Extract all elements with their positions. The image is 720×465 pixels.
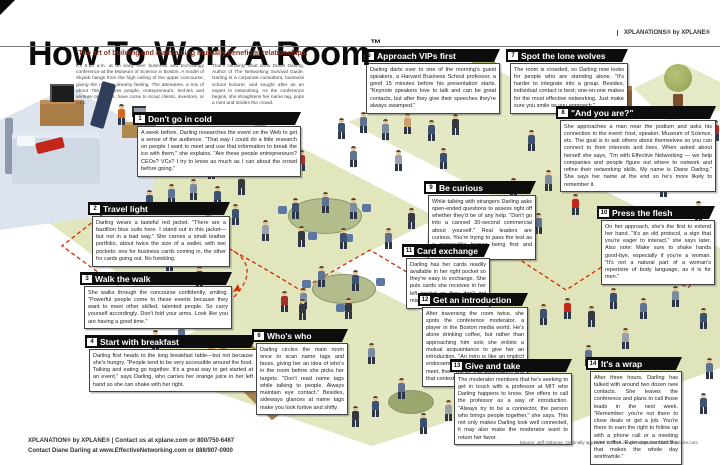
person-figure <box>322 192 329 213</box>
person-figure <box>338 118 345 139</box>
callout-title: "And you are?" <box>571 108 633 118</box>
person-figure <box>281 291 288 312</box>
person-figure <box>610 288 617 309</box>
corner-triangle-mark <box>0 0 15 15</box>
callout-dont-go-in-cold: 1Don't go in cold A week before, Darling… <box>133 112 301 177</box>
intro-paragraph-1: It's 6:50 a.m. at an early riser busines… <box>76 64 204 108</box>
callout-header: 6Who's who <box>252 329 348 342</box>
callout-title: Be curious <box>439 183 483 193</box>
person-figure <box>238 174 245 195</box>
person-figure <box>292 198 299 219</box>
poster-subtitle: The art of building and maintaining mutu… <box>68 50 318 57</box>
callout-body: After three hours, Darling has talked wi… <box>590 371 682 465</box>
intro-paragraph-2: That's certainly what drew Diane Darling… <box>212 64 304 108</box>
person-figure <box>700 308 707 329</box>
person-figure <box>352 406 359 427</box>
person-figure <box>588 306 595 327</box>
callout-approach-vips-first: 5Approach VIPs first Darling darts over … <box>362 49 500 114</box>
step-number: 13 <box>452 362 462 370</box>
callout-press-the-flesh: 10Press the flesh On her approach, she's… <box>597 206 715 285</box>
step-number: 14 <box>588 360 598 368</box>
callout-give-and-take: 13Give and take The moderator mentions t… <box>450 359 572 445</box>
person-figure <box>372 396 379 417</box>
callout-body: Darling first heads to the long breakfas… <box>89 349 257 392</box>
callout-body: Darling darts over to one of the morning… <box>366 63 500 114</box>
footer-contact-info: XPLANATION® by XPLANE® | Contact us at x… <box>28 436 234 456</box>
person-figure <box>345 298 352 319</box>
callout-spot-the-lone-wolves: 7Spot the lone wolves The room is crowde… <box>506 49 628 114</box>
person-figure <box>706 358 713 379</box>
callout-header: 4Start with breakfast <box>85 335 257 348</box>
callout-whos-who: 6Who's who Darling circles the main room… <box>252 329 348 415</box>
person-figure <box>368 343 375 364</box>
footer-source-credit: Source: Jeff Osborne. Originally appeare… <box>520 440 698 445</box>
callout-header: 10Press the flesh <box>597 206 715 219</box>
person-figure <box>299 299 306 320</box>
callout-body: Darling circles the main room once to sc… <box>256 343 348 415</box>
callout-header: 13Give and take <box>450 359 572 372</box>
callout-travel-light: 2Travel light Darling wears a tasteful r… <box>88 202 230 267</box>
footer-line-2: Contact Diane Darling at www.EffectiveNe… <box>28 446 234 456</box>
callout-title: Spot the lone wolves <box>521 51 606 61</box>
step-number: 7 <box>508 52 518 60</box>
person-figure <box>540 304 547 325</box>
person-figure <box>452 114 459 135</box>
person-figure <box>404 113 411 134</box>
callout-title: Give and take <box>465 361 520 371</box>
callout-title: Don't go in cold <box>148 114 212 124</box>
callout-header: 2Travel light <box>88 202 230 215</box>
darling-figure <box>564 298 571 319</box>
callout-body: She walks through the concourse confiden… <box>84 286 232 329</box>
callout-header: 1Don't go in cold <box>133 112 301 125</box>
callout-title: It's a wrap <box>601 359 642 369</box>
callout-header: 8"And you are?" <box>556 106 716 119</box>
header-rule <box>0 46 720 47</box>
callout-header: 14It's a wrap <box>586 357 682 370</box>
callout-title: Approach VIPs first <box>377 51 456 61</box>
callout-title: Start with breakfast <box>100 337 179 347</box>
person-figure <box>395 150 402 171</box>
person-figure <box>428 120 435 141</box>
person-figure <box>640 298 647 319</box>
person-figure <box>350 146 357 167</box>
person-figure <box>398 378 405 399</box>
person-figure <box>535 213 542 234</box>
step-number: 6 <box>254 332 264 340</box>
callout-title: Press the flesh <box>612 208 672 218</box>
callout-body: A week before, Darling researches the ev… <box>137 126 301 177</box>
callout-header: 3Walk the walk <box>80 272 232 285</box>
callout-header: 7Spot the lone wolves <box>506 49 628 62</box>
person-figure <box>350 198 357 219</box>
person-figure <box>528 130 535 151</box>
step-number: 1 <box>135 115 145 123</box>
person-figure <box>622 328 629 349</box>
darling-figure <box>572 194 579 215</box>
step-number: 8 <box>558 109 568 117</box>
person-figure <box>190 179 197 200</box>
poster-how-to-work-a-room: How To Work A Room™ XPLANATiONS® by XPLA… <box>0 0 720 465</box>
callout-header: 9Be curious <box>424 181 536 194</box>
callout-title: Who's who <box>267 331 312 341</box>
person-figure <box>318 266 325 287</box>
person-figure <box>298 226 305 247</box>
callout-and-you-are: 8"And you are?" She approaches a man nea… <box>556 106 716 192</box>
step-number: 2 <box>90 205 100 213</box>
callout-title: Walk the walk <box>95 274 150 284</box>
person-figure <box>232 204 239 225</box>
person-figure <box>420 413 427 434</box>
person-figure <box>360 112 367 133</box>
callout-header: 5Approach VIPs first <box>362 49 500 62</box>
callout-header: 11Card exchange <box>402 244 490 257</box>
person-figure <box>352 270 359 291</box>
person-figure <box>440 148 447 169</box>
step-number: 9 <box>426 184 436 192</box>
step-number: 10 <box>599 209 609 217</box>
callout-header: 12Get an introduction <box>418 293 528 306</box>
person-figure <box>545 170 552 191</box>
person-figure <box>672 286 679 307</box>
xplane-brand-logo: XPLANATiONS® by XPLANE® <box>617 30 710 36</box>
callout-title: Card exchange <box>417 246 478 256</box>
step-number: 4 <box>87 338 97 346</box>
person-figure <box>385 228 392 249</box>
person-figure <box>262 220 269 241</box>
footer-line-1: XPLANATION® by XPLANE® | Contact us at x… <box>28 436 234 446</box>
step-number: 12 <box>420 296 430 304</box>
callout-body: On her approach, she's the first to exte… <box>601 220 715 285</box>
callout-body: The moderator mentions that he's seeking… <box>454 373 572 445</box>
callout-its-a-wrap: 14It's a wrap After three hours, Darling… <box>586 357 682 465</box>
callout-title: Travel light <box>103 204 148 214</box>
trademark-symbol: ™ <box>370 38 381 50</box>
callout-title: Get an introduction <box>433 295 511 305</box>
person-figure <box>700 393 707 414</box>
step-number: 3 <box>82 275 92 283</box>
callout-walk-the-walk: 3Walk the walk She walks through the con… <box>80 272 232 329</box>
callout-body: Darling wears a tasteful red jacket. "Th… <box>92 216 230 267</box>
step-number: 11 <box>404 247 414 255</box>
callout-start-with-breakfast: 4Start with breakfast Darling first head… <box>85 335 257 392</box>
person-figure <box>408 208 415 229</box>
person-figure <box>340 228 347 249</box>
callout-body: She approaches a man near the podium and… <box>560 120 716 192</box>
person-figure <box>382 119 389 140</box>
